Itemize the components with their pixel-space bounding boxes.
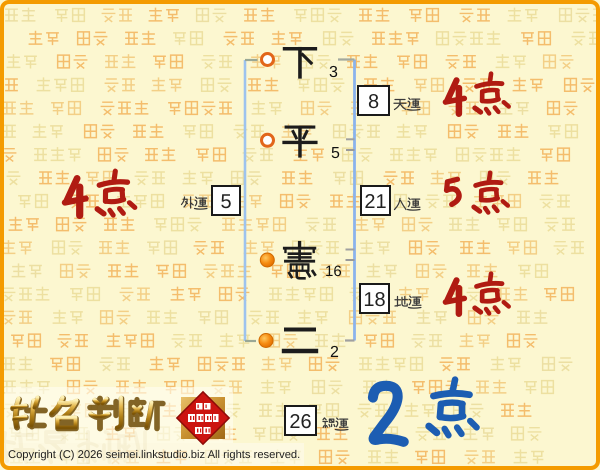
svg-text:Copyright (C) 2026 seimei.link: Copyright (C) 2026 seimei.linkstudio.biz… bbox=[8, 449, 300, 461]
svg-text:3: 3 bbox=[329, 64, 338, 81]
svg-text:18: 18 bbox=[363, 289, 385, 311]
svg-text:5: 5 bbox=[220, 191, 231, 213]
svg-text:8: 8 bbox=[368, 91, 379, 113]
svg-text:5: 5 bbox=[331, 145, 340, 162]
svg-text:26: 26 bbox=[289, 411, 311, 433]
svg-text:21: 21 bbox=[364, 191, 386, 213]
svg-text:2: 2 bbox=[330, 344, 339, 361]
svg-text:16: 16 bbox=[325, 263, 342, 280]
